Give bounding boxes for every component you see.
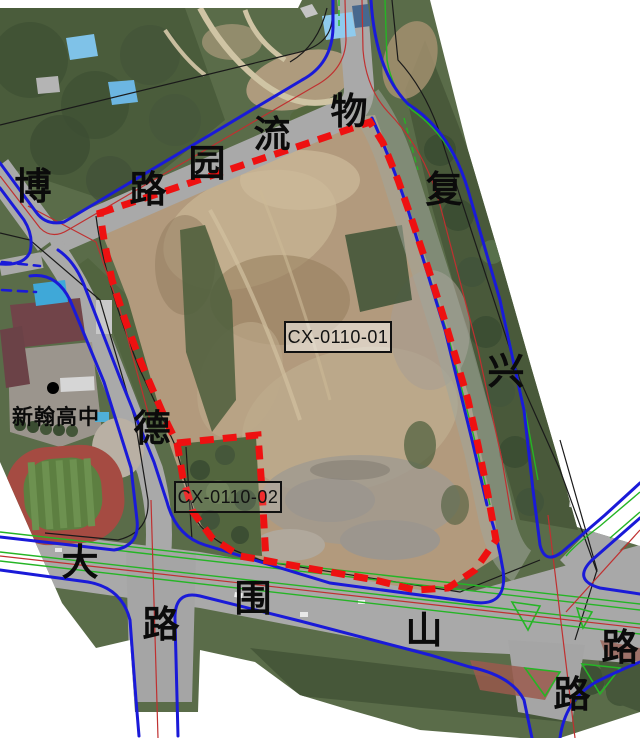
road-label-liu: 流 bbox=[254, 114, 291, 155]
road-label-yuan: 园 bbox=[189, 143, 226, 184]
road-label-de: 德 bbox=[134, 408, 171, 449]
road-label-xing: 兴 bbox=[488, 351, 525, 392]
parcel-2-code: CX-0110-02 bbox=[178, 487, 279, 507]
road-label-wei: 围 bbox=[235, 578, 272, 619]
road-label-lu-south-right: 路 bbox=[554, 674, 592, 715]
road-label-lu-top: 路 bbox=[130, 169, 168, 210]
road-label-da: 大 bbox=[62, 542, 99, 583]
parcel-label-1: CX-0110-01 bbox=[285, 322, 391, 352]
parcel-1-code: CX-0110-01 bbox=[288, 327, 389, 347]
road-label-wu: 物 bbox=[331, 91, 368, 132]
school-poi-label: 新翰高中 bbox=[12, 405, 100, 429]
school-poi-dot bbox=[47, 382, 59, 394]
planning-map-canvas: CX-0110-01 CX-0110-02 博 路 园 流 物 复 兴 德 大 … bbox=[0, 0, 640, 738]
parcel-label-2: CX-0110-02 bbox=[175, 482, 281, 512]
road-label-lu-south-left: 路 bbox=[143, 604, 181, 645]
road-label-fu: 复 bbox=[426, 169, 463, 210]
map-screenshot: CX-0110-01 CX-0110-02 博 路 园 流 物 复 兴 德 大 … bbox=[0, 0, 640, 738]
road-label-shan: 山 bbox=[406, 610, 443, 651]
road-label-bo: 博 bbox=[15, 166, 52, 207]
road-label-lu-east: 路 bbox=[602, 627, 640, 668]
